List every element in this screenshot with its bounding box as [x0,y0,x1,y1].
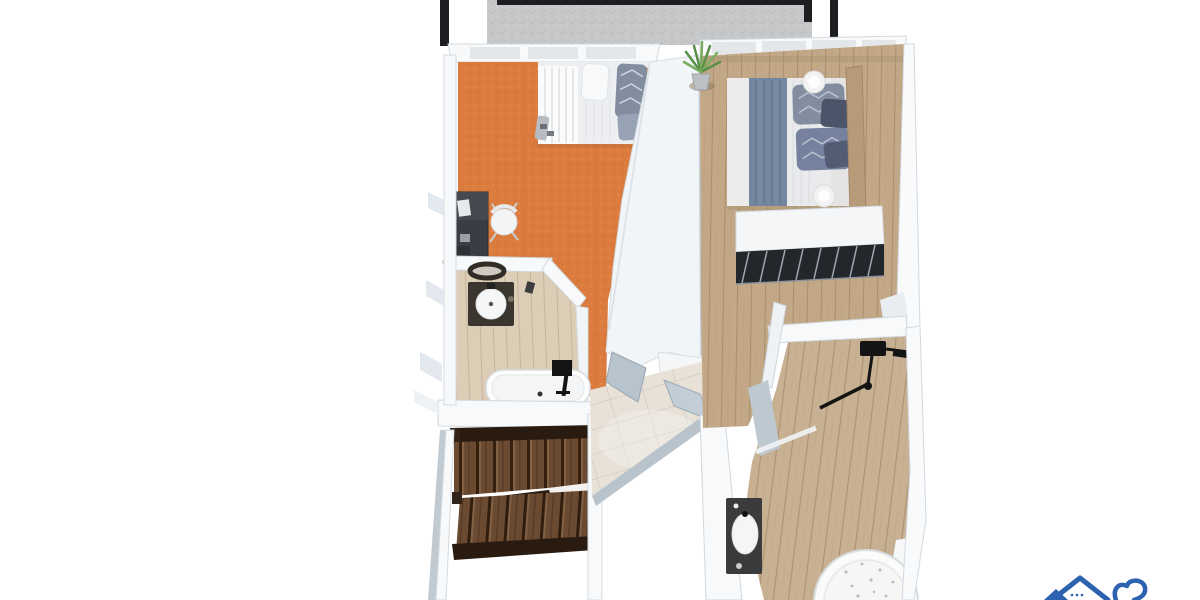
blue-throw [749,78,787,206]
railing-post-left [440,0,449,46]
sink-faucet [487,283,495,289]
vanity-item [736,563,742,569]
sink-drain [489,302,493,306]
round-mirror [470,264,504,278]
vanity-lower [726,498,762,574]
shower-joint [864,382,872,390]
railing-post-right [830,0,838,40]
window-glazing [586,47,636,59]
wardrobe [736,206,884,284]
duvet-edge [727,78,749,206]
nightstand-bottom [813,185,835,207]
window-glazing [528,47,578,59]
bathroom-south-wall [438,400,600,428]
bed-right [726,66,866,214]
headboard [846,66,866,214]
railing-post-mid [804,0,812,22]
balcony-deck [487,0,812,45]
desk-item [460,234,470,242]
tub-spout [556,391,570,394]
floorplan-render [0,0,1200,600]
left-outer-wall [444,55,456,405]
tub-faucet-box [552,360,572,376]
vanity-item [734,504,739,509]
tub-drain [538,392,543,397]
shower-head [860,341,886,356]
bed-left [534,62,650,148]
sink-faucet [742,511,748,517]
window-glazing [470,47,520,59]
stair-stringer-mark [452,492,462,504]
desk-top [452,192,488,220]
window-wall-left [448,44,660,62]
white-pillow [581,63,609,100]
desk-drawer [456,246,470,256]
vanity-item [508,296,514,302]
slipper [547,131,554,136]
paper [457,199,471,217]
nightstand-top [803,71,825,93]
wardrobe-top [736,206,884,252]
plant-pot [692,74,710,90]
vanity-upper [468,282,514,326]
balcony-railing [497,0,809,5]
wall-shadow [700,56,905,62]
oval-sink [732,514,758,554]
window-glazing [712,42,756,54]
chair-seat [491,209,517,235]
slipper [540,124,547,129]
bathtub-inner [492,375,584,401]
